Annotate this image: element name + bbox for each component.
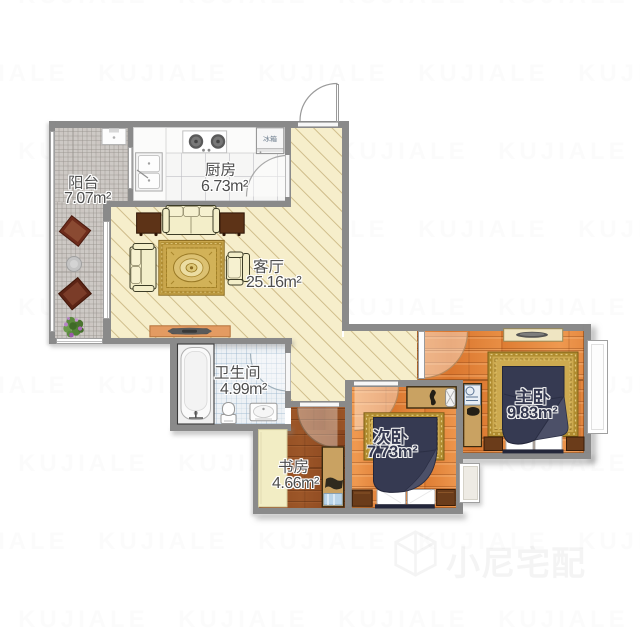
svg-text:冰箱: 冰箱 — [263, 136, 277, 144]
